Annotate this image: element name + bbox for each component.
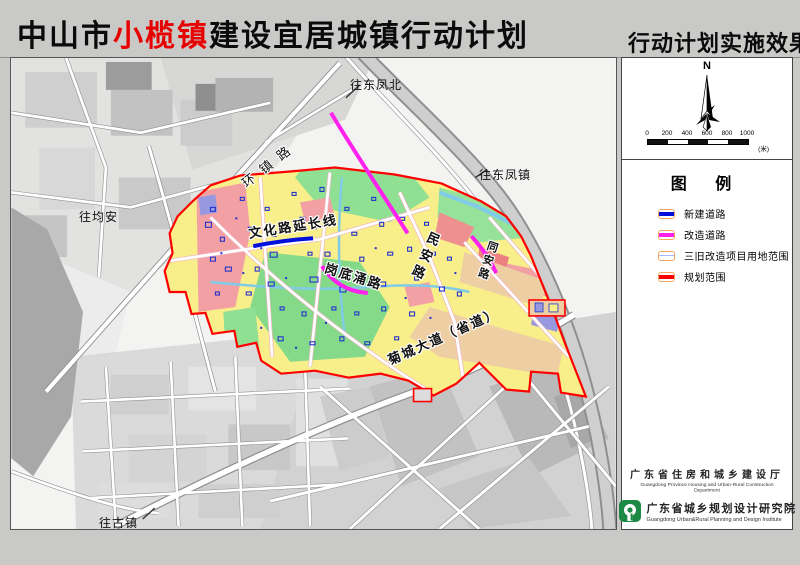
- scale-tick: 200: [662, 130, 673, 137]
- map-sheet-title: 行动计划实施效果图: [628, 26, 795, 58]
- legend-section: 图 例 新建道路 改造道路 三旧改造项目用地范围 规划范围: [622, 160, 792, 284]
- page-title-suffix: 建设宜居城镇行动计划: [209, 20, 529, 53]
- legend-label: 改造道路: [684, 227, 726, 242]
- page-title-highlight: 小榄镇: [113, 20, 209, 53]
- north-scale-section: N 0 200 400 600 800 1000: [622, 58, 792, 160]
- legend-item-new-road: 新建道路: [658, 206, 792, 221]
- scale-tick: 400: [682, 130, 693, 137]
- dept-name-cn: 广东省住房和城乡建设厅: [622, 466, 792, 481]
- scale-bar-ticks: 0 200 400 600 800 1000: [645, 130, 769, 138]
- institute-logo-icon: [618, 499, 642, 523]
- map-sidebar: N 0 200 400 600 800 1000: [621, 57, 793, 530]
- scale-tick: 1000: [740, 130, 754, 137]
- legend-item-renovation-area: 三旧改造项目用地范围: [658, 248, 792, 263]
- page-title-prefix: 中山市: [17, 20, 113, 53]
- page-title: 中山市小榄镇建设宜居城镇行动计划: [17, 11, 529, 55]
- plan-poster: 中山市小榄镇建设宜居城镇行动计划 行动计划实施效果图: [0, 0, 800, 565]
- scale-tick: 0: [645, 130, 649, 137]
- legend-item-rebuilt-road: 改造道路: [658, 227, 792, 242]
- credits-block: 广东省住房和城乡建设厅 Guangdong Province Housing a…: [622, 466, 792, 523]
- north-arrow-icon: [685, 71, 729, 133]
- label-to-dongfeng-town: 往东凤镇: [479, 166, 531, 183]
- label-to-dongfeng-north: 往东凤北: [350, 76, 402, 93]
- new-road-swatch-icon: [658, 209, 675, 219]
- label-to-junan: 往均安: [79, 208, 118, 225]
- institute-name-en: Guangdong Urban&Rural Planning and Desig…: [647, 517, 797, 523]
- legend-items: 新建道路 改造道路 三旧改造项目用地范围 规划范围: [658, 206, 792, 284]
- map-drawing: [11, 58, 616, 529]
- scale-bar: 0 200 400 600 800 1000 (米): [645, 130, 769, 152]
- legend-label: 规划范围: [684, 269, 726, 284]
- planning-boundary-swatch-icon: [658, 272, 675, 282]
- scale-bar-strip: [647, 139, 749, 145]
- legend-item-planning-boundary: 规划范围: [658, 269, 792, 284]
- scale-tick: 800: [722, 130, 733, 137]
- label-to-guzhen: 往古镇: [99, 514, 138, 530]
- legend-label: 新建道路: [684, 206, 726, 221]
- map-canvas: 往东凤北 环镇路 文化路延长线 岗底涌路 民安路 同安路 菊城大道（省道） 往东…: [10, 57, 617, 530]
- legend-label: 三旧改造项目用地范围: [684, 248, 789, 263]
- rebuilt-road-swatch-icon: [658, 230, 675, 240]
- legend-heading: 图 例: [622, 170, 792, 194]
- institute-name-cn: 广东省城乡规划设计研究院: [647, 500, 797, 516]
- scale-unit: (米): [758, 143, 769, 153]
- scale-tick: 600: [702, 130, 713, 137]
- dept-name-en: Guangdong Province Housing and Urban-Rur…: [631, 483, 784, 494]
- renovation-area-swatch-icon: [658, 251, 675, 261]
